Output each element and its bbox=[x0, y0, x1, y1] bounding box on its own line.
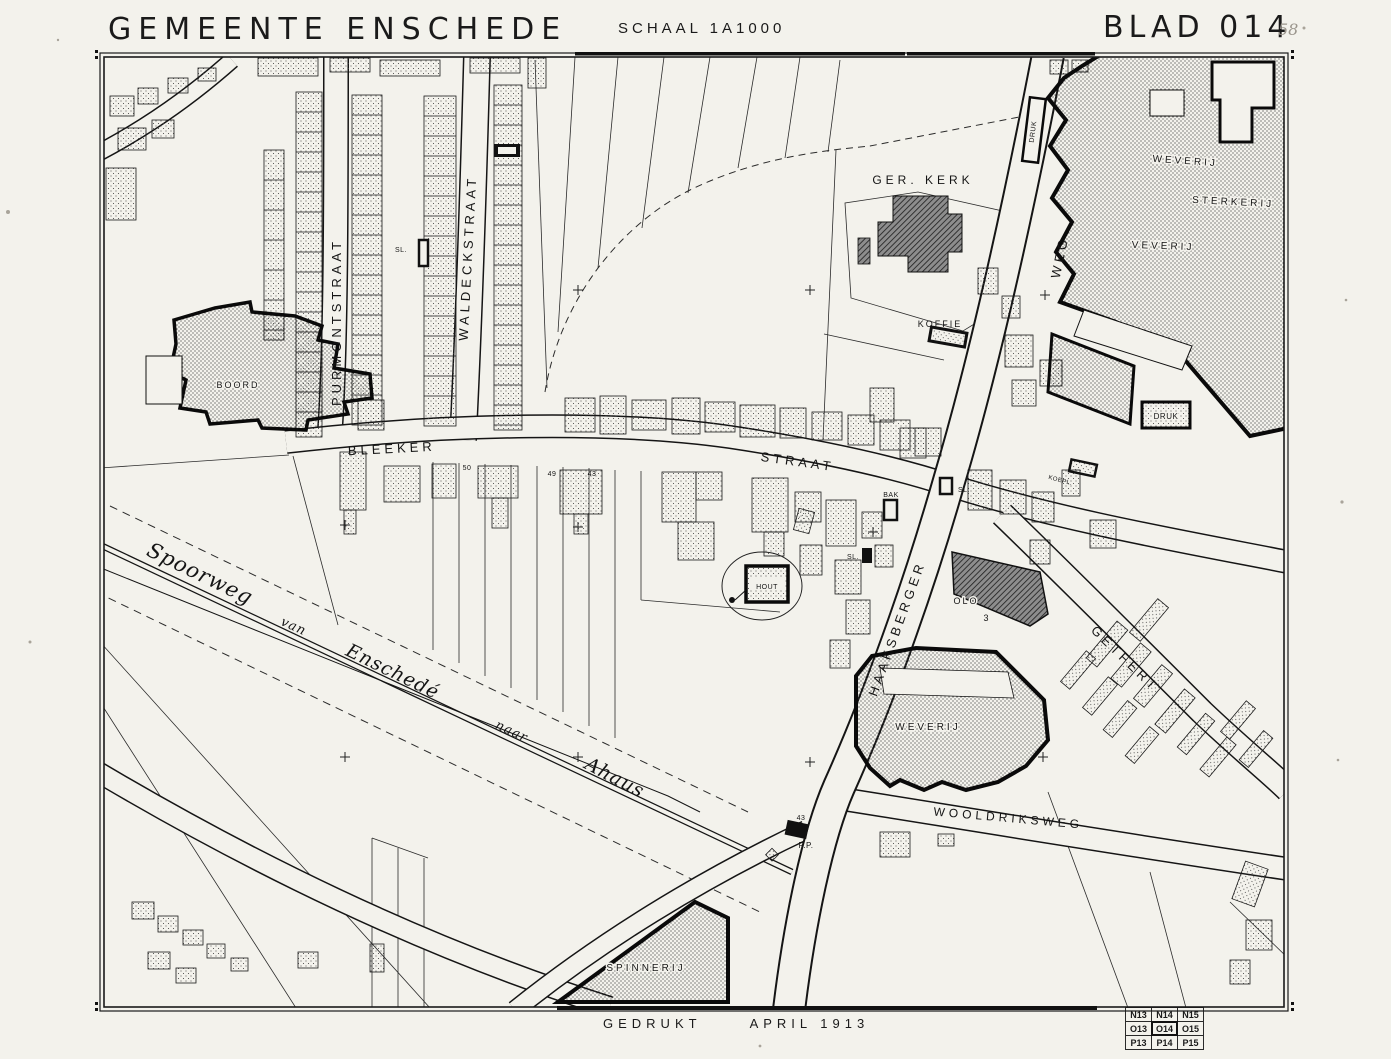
koffie-building bbox=[929, 327, 967, 347]
building-label-ger-kerk: GER. KERK bbox=[872, 173, 973, 187]
street-label-purmontstraat: PURMONTSTRAAT bbox=[329, 238, 344, 406]
map-canvas: PURMONTSTRAAT WALDECKSTRAAT BLEEKER STRA… bbox=[0, 0, 1391, 1059]
building-label-hout: HOUT bbox=[756, 584, 778, 591]
lot-number-43-bleeker: 43 bbox=[588, 471, 597, 478]
building-label-olo: OLO bbox=[953, 596, 978, 606]
lot-number-50: 50 bbox=[463, 465, 472, 472]
building-label-sl-1: SL. bbox=[395, 247, 407, 254]
sl-building-straat bbox=[940, 478, 952, 494]
building-label-veverij: VEVERIJ bbox=[1132, 240, 1195, 253]
building-label-olo-number: 3 bbox=[983, 613, 990, 623]
houses-haaksberger-west bbox=[795, 492, 893, 668]
building-label-weverij-south: WEVERIJ bbox=[895, 722, 960, 733]
houses-wooldriksweg bbox=[880, 832, 954, 857]
building-label-druk-east: DRUK bbox=[1154, 412, 1179, 421]
sl-black-mark bbox=[862, 548, 872, 563]
railway-label-enschede: Enschedé bbox=[341, 639, 443, 704]
building-label-pp: P.P. bbox=[798, 841, 813, 850]
building-label-koffie: KOFFIE bbox=[918, 319, 963, 329]
lot-number-49: 49 bbox=[548, 471, 557, 478]
houses-bleeker-south bbox=[340, 452, 815, 560]
building-label-bak: BAK bbox=[883, 492, 899, 499]
building-label-sl-3: SL. bbox=[958, 487, 970, 494]
building-label-sl-2: SL. bbox=[847, 554, 859, 561]
building-label-boord: BOORD bbox=[216, 380, 259, 390]
black-building-waldeck bbox=[494, 144, 520, 157]
index-cell-current: O14 bbox=[1151, 1021, 1178, 1036]
building-label-spinnerij: SPINNERIJ bbox=[606, 963, 685, 974]
bak-building bbox=[884, 500, 897, 520]
church-annex bbox=[858, 238, 870, 264]
street-label-bleeker: BLEEKER bbox=[347, 439, 436, 459]
church-building bbox=[878, 196, 962, 272]
houses-southeast-corner bbox=[1230, 861, 1272, 984]
sl-building-waldeck bbox=[419, 240, 428, 266]
lot-number-43-pp: 43 bbox=[797, 815, 806, 822]
